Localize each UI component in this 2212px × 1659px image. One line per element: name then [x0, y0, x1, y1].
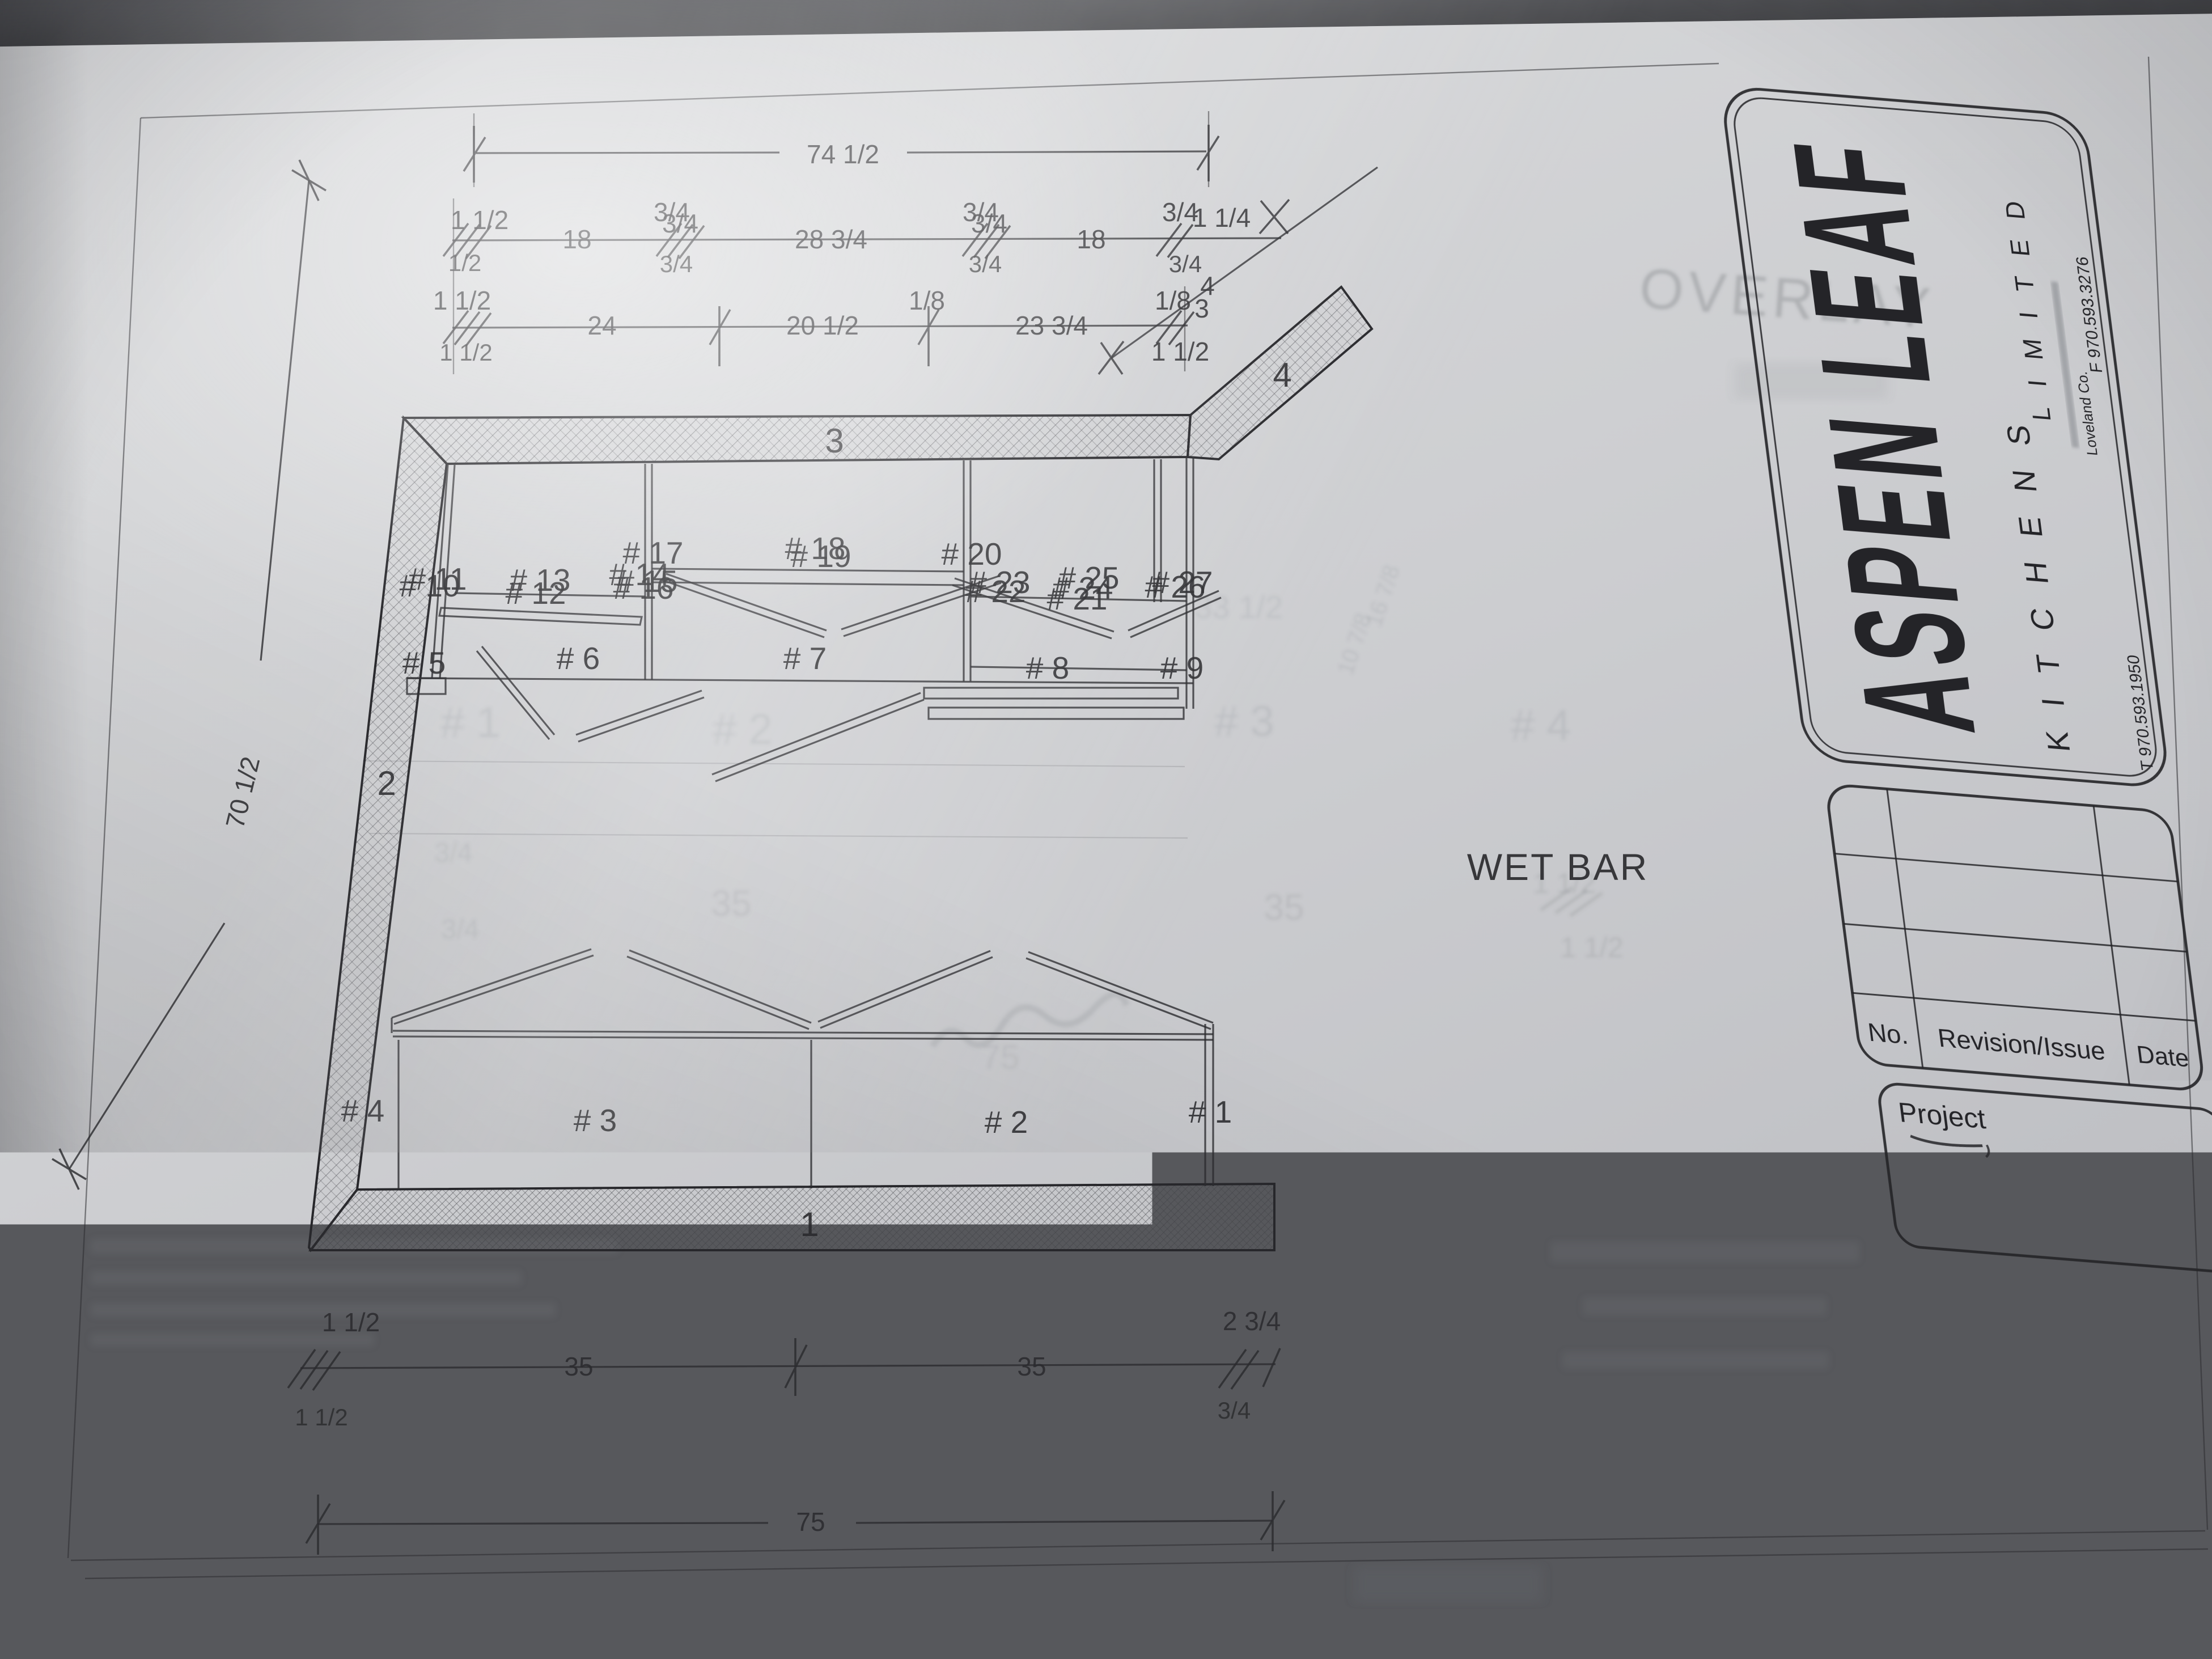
ghost-dim: 10 7/8	[1333, 610, 1376, 678]
ghost-dim: 3/4	[435, 838, 473, 868]
dim: 18	[562, 225, 591, 254]
part-label-16: # 16	[613, 570, 673, 606]
dimensions-bottom: 1 1/2 1 1/2 35 35 2 3/4 3/4 75	[288, 1306, 1285, 1555]
photo-of-drawing: OVERLAY # 1 # 2 # 3 # 4 33 1/2 35 35 75 …	[0, 0, 2212, 1659]
wall-label-1: 1	[800, 1205, 819, 1243]
wall-label-4: 4	[1273, 356, 1291, 394]
wall-top	[404, 415, 1190, 464]
dim: 35	[564, 1352, 593, 1381]
part-label-2: # 2	[985, 1104, 1028, 1140]
ghost-dark-smudge	[1355, 1566, 1542, 1602]
ghost-part-4: # 4	[1511, 701, 1571, 750]
col-header-date: Date	[2135, 1042, 2190, 1073]
address-smudge	[2050, 281, 2079, 448]
wall-label-2: 2	[377, 764, 396, 802]
dim: 3/4	[660, 251, 693, 277]
col-header-no: No.	[1866, 1018, 1910, 1049]
project-block: Project	[1877, 1082, 2212, 1273]
col-header-revision: Revision/Issue	[1936, 1023, 2107, 1065]
part-label-17: # 17	[622, 535, 683, 570]
fax-number: F 970.593.3276	[2073, 256, 2106, 373]
dim: 3/4	[969, 251, 1002, 277]
dim: 3/4	[1169, 251, 1202, 277]
page-count: 1 of 1	[2095, 1509, 2175, 1548]
drawing-title: WET BAR	[1467, 846, 1649, 888]
ghost-dim: 1 1/2	[1560, 932, 1623, 963]
part-label-3: # 3	[574, 1103, 617, 1138]
dimensions-top: 74 1/2 1 1/2 1/2 18 3/4 3/4 3/4 28 3/4 3…	[433, 111, 1378, 374]
dim: 24	[587, 311, 616, 340]
ghost-part-1: # 1	[440, 699, 501, 747]
ghost-dim: 35	[711, 883, 751, 924]
part-label-8: # 8	[1026, 650, 1069, 685]
job-number: Job #07-162G	[2024, 1437, 2212, 1484]
dim: 1 1/2	[433, 286, 491, 315]
base-cabinets	[392, 949, 1213, 1190]
brand-limited: LIMITED	[1997, 180, 2057, 422]
part-label-1: # 1	[1189, 1094, 1232, 1129]
part-label-19: # 19	[790, 539, 851, 574]
dim: 23 3/4	[1015, 311, 1088, 340]
part-label-4: # 4	[341, 1093, 384, 1128]
part-label-11: # 11	[409, 561, 467, 596]
dim: 35	[1017, 1352, 1046, 1381]
ghost-dim: 35	[1264, 887, 1304, 928]
dim: 1 1/4	[1193, 203, 1251, 232]
redaction-mark	[1942, 1294, 2057, 1334]
dim: 18	[1077, 225, 1105, 254]
dim: 1 1/2	[439, 339, 492, 366]
part-label-23: # 23	[969, 565, 1030, 600]
dim-top-total: 74 1/2	[807, 139, 879, 169]
wall-label-3: 3	[825, 422, 844, 460]
title-block: ASPEN LEAF KITCHENS LIMITED Loveland Co.…	[1721, 86, 2212, 1564]
project-label: Project	[1897, 1097, 1988, 1135]
part-label-13: # 13	[510, 562, 570, 598]
part-label-5: # 5	[402, 645, 446, 680]
blueprint-drawing: OVERLAY # 1 # 2 # 3 # 4 33 1/2 35 35 75 …	[0, 0, 2212, 1659]
dim: 1 1/2	[1151, 337, 1209, 366]
part-label-25: # 25	[1058, 560, 1119, 595]
phone-number: T 970.593.1950	[2124, 654, 2157, 772]
ghost-dim: 3/4	[442, 915, 480, 945]
dim: 3/4	[662, 209, 698, 238]
revision-table: No. Revision/Issue Date	[1825, 784, 2205, 1091]
dim: 3/4	[971, 209, 1007, 238]
dim: 2 3/4	[1223, 1306, 1281, 1336]
logo-block: ASPEN LEAF KITCHENS LIMITED Loveland Co.…	[1721, 86, 2169, 788]
dim-bottom-total: 75	[796, 1507, 825, 1537]
dim: 20 1/2	[786, 311, 859, 340]
brand-name: ASPEN LEAF	[1759, 132, 2008, 738]
ghost-part-2: # 2	[713, 705, 773, 754]
dim: 1/8	[1155, 286, 1191, 315]
part-label-9: # 9	[1160, 650, 1204, 685]
part-label-7: # 7	[783, 641, 827, 676]
door-swings-base	[392, 949, 1213, 1033]
wall-bottom	[311, 1184, 1274, 1250]
dim: 1 1/2	[295, 1404, 348, 1431]
dim: 1 1/2	[322, 1307, 380, 1337]
ghost-part-3: # 3	[1214, 697, 1274, 746]
dimension-left: 70 1/2	[52, 160, 326, 1190]
dim: 1 1/2	[451, 205, 508, 235]
brand-kitchens: KITCHENS	[1997, 399, 2077, 753]
ghost-company-lines	[1550, 1242, 1859, 1369]
dim-left-total: 70 1/2	[220, 754, 265, 831]
job-block: Job #07-162G 1 of 1	[1919, 1266, 2212, 1564]
dim: 3/4	[1218, 1397, 1251, 1424]
dim: 28 3/4	[795, 225, 867, 254]
part-label-27: # 27	[1152, 565, 1213, 600]
part-label-6: # 6	[557, 641, 600, 676]
redaction-mark	[1951, 1332, 2141, 1390]
dim: 1/8	[909, 286, 945, 315]
